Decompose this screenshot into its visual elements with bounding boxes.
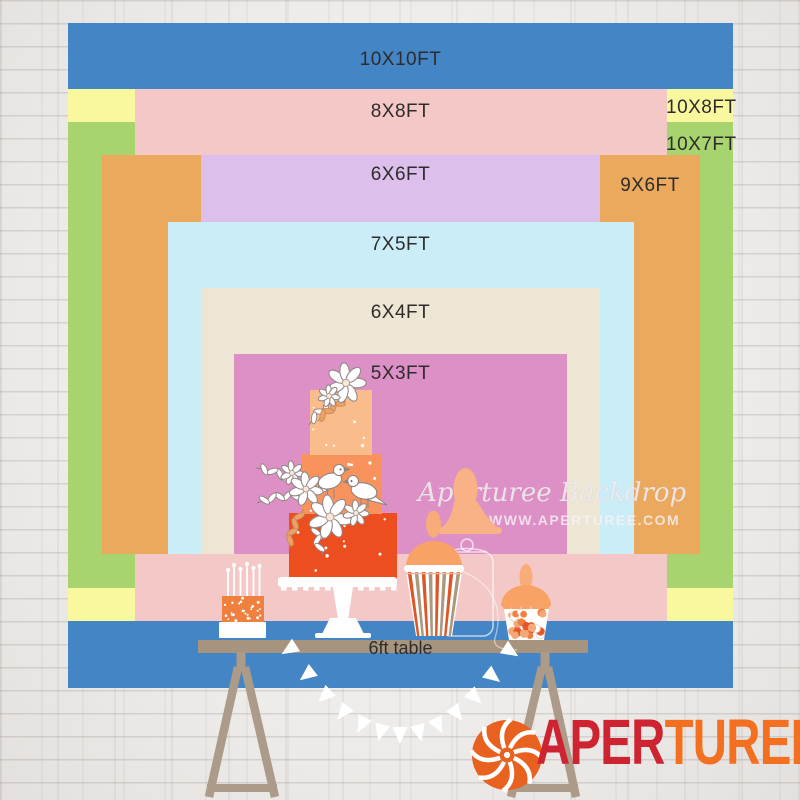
aperture-icon: [470, 714, 544, 796]
brand-wordmark-part1: APER: [536, 706, 665, 778]
size-label-6x4: 6X4FT: [68, 302, 733, 324]
size-label-8x8: 8X8FT: [68, 101, 733, 123]
brand-wordmark-part2: TUREE: [665, 706, 800, 778]
size-label-10x7: 10X7FT: [666, 134, 733, 156]
size-label-10x10: 10X10FT: [68, 49, 733, 71]
table-size-label: 6ft table: [68, 638, 733, 659]
watermark-website: WWW.APERTUREE.COM: [489, 512, 669, 528]
size-label-5x3: 5X3FT: [68, 363, 733, 385]
brand-wordmark: APERTUREE: [536, 705, 800, 781]
size-label-10x8: 10X8FT: [666, 97, 733, 119]
brand-logo: APERTUREE: [470, 712, 800, 797]
brick-wall-background: 10X10FT 8X8FT 10X8FT 10X7FT 6X6FT 9X6FT …: [0, 0, 800, 800]
watermark-brand-script: Aperturee Backdrop: [418, 478, 658, 508]
size-label-7x5: 7X5FT: [68, 234, 733, 256]
backdrop-size-chart: 10X10FT 8X8FT 10X8FT 10X7FT 6X6FT 9X6FT …: [68, 23, 733, 688]
size-label-9x6: 9X6FT: [595, 175, 705, 197]
